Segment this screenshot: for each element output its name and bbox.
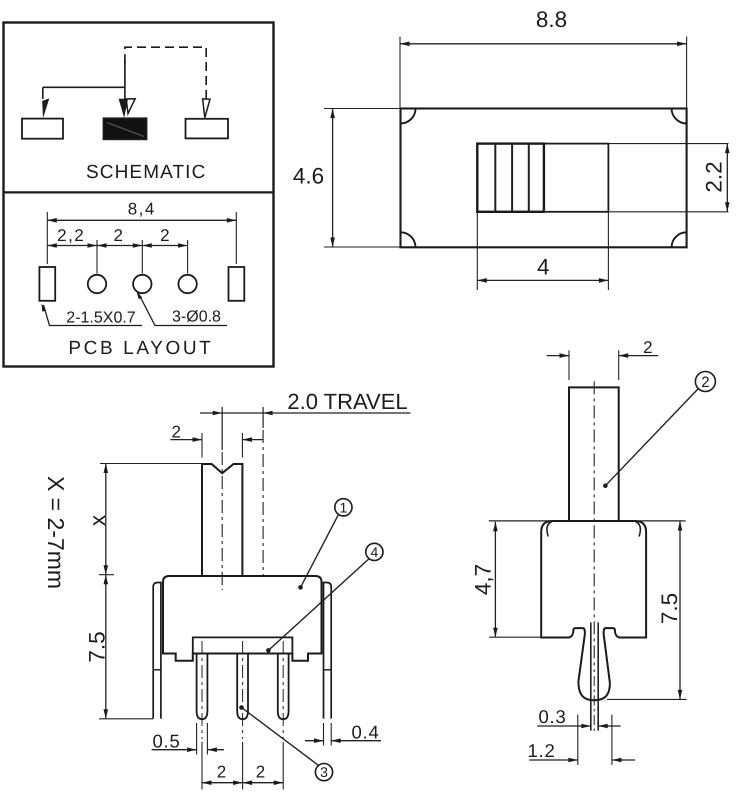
svg-text:3-Ø0.8: 3-Ø0.8	[172, 309, 221, 326]
svg-text:x: x	[85, 515, 110, 526]
svg-text:3: 3	[320, 764, 328, 780]
svg-text:0.5: 0.5	[152, 730, 180, 751]
svg-text:4: 4	[371, 544, 379, 560]
svg-text:PCB LAYOUT: PCB LAYOUT	[68, 338, 213, 359]
svg-text:1: 1	[340, 499, 348, 515]
svg-text:4: 4	[537, 254, 550, 279]
svg-text:2.0 TRAVEL: 2.0 TRAVEL	[287, 389, 407, 414]
svg-text:1.2: 1.2	[527, 740, 555, 761]
svg-text:2: 2	[701, 374, 709, 391]
svg-text:2: 2	[113, 226, 122, 245]
svg-text:2,2: 2,2	[57, 226, 85, 245]
svg-text:2: 2	[217, 762, 226, 781]
svg-text:2: 2	[256, 762, 265, 781]
svg-text:2-1.5X0.7: 2-1.5X0.7	[66, 310, 135, 327]
svg-text:7.5: 7.5	[657, 593, 682, 624]
svg-text:4.6: 4.6	[293, 164, 324, 189]
svg-text:8,4: 8,4	[128, 199, 156, 218]
svg-text:7.5: 7.5	[85, 631, 110, 662]
svg-text:X = 2-7mm: X = 2-7mm	[43, 476, 69, 589]
svg-text:0.4: 0.4	[351, 721, 379, 742]
svg-text:2: 2	[160, 226, 169, 245]
svg-text:2: 2	[171, 422, 180, 441]
svg-text:8.8: 8.8	[536, 7, 567, 32]
svg-text:2: 2	[643, 338, 652, 357]
svg-text:2.2: 2.2	[702, 161, 727, 192]
svg-text:0.3: 0.3	[538, 706, 566, 727]
svg-text:SCHEMATIC: SCHEMATIC	[86, 162, 206, 183]
svg-text:4,7: 4,7	[471, 564, 496, 595]
